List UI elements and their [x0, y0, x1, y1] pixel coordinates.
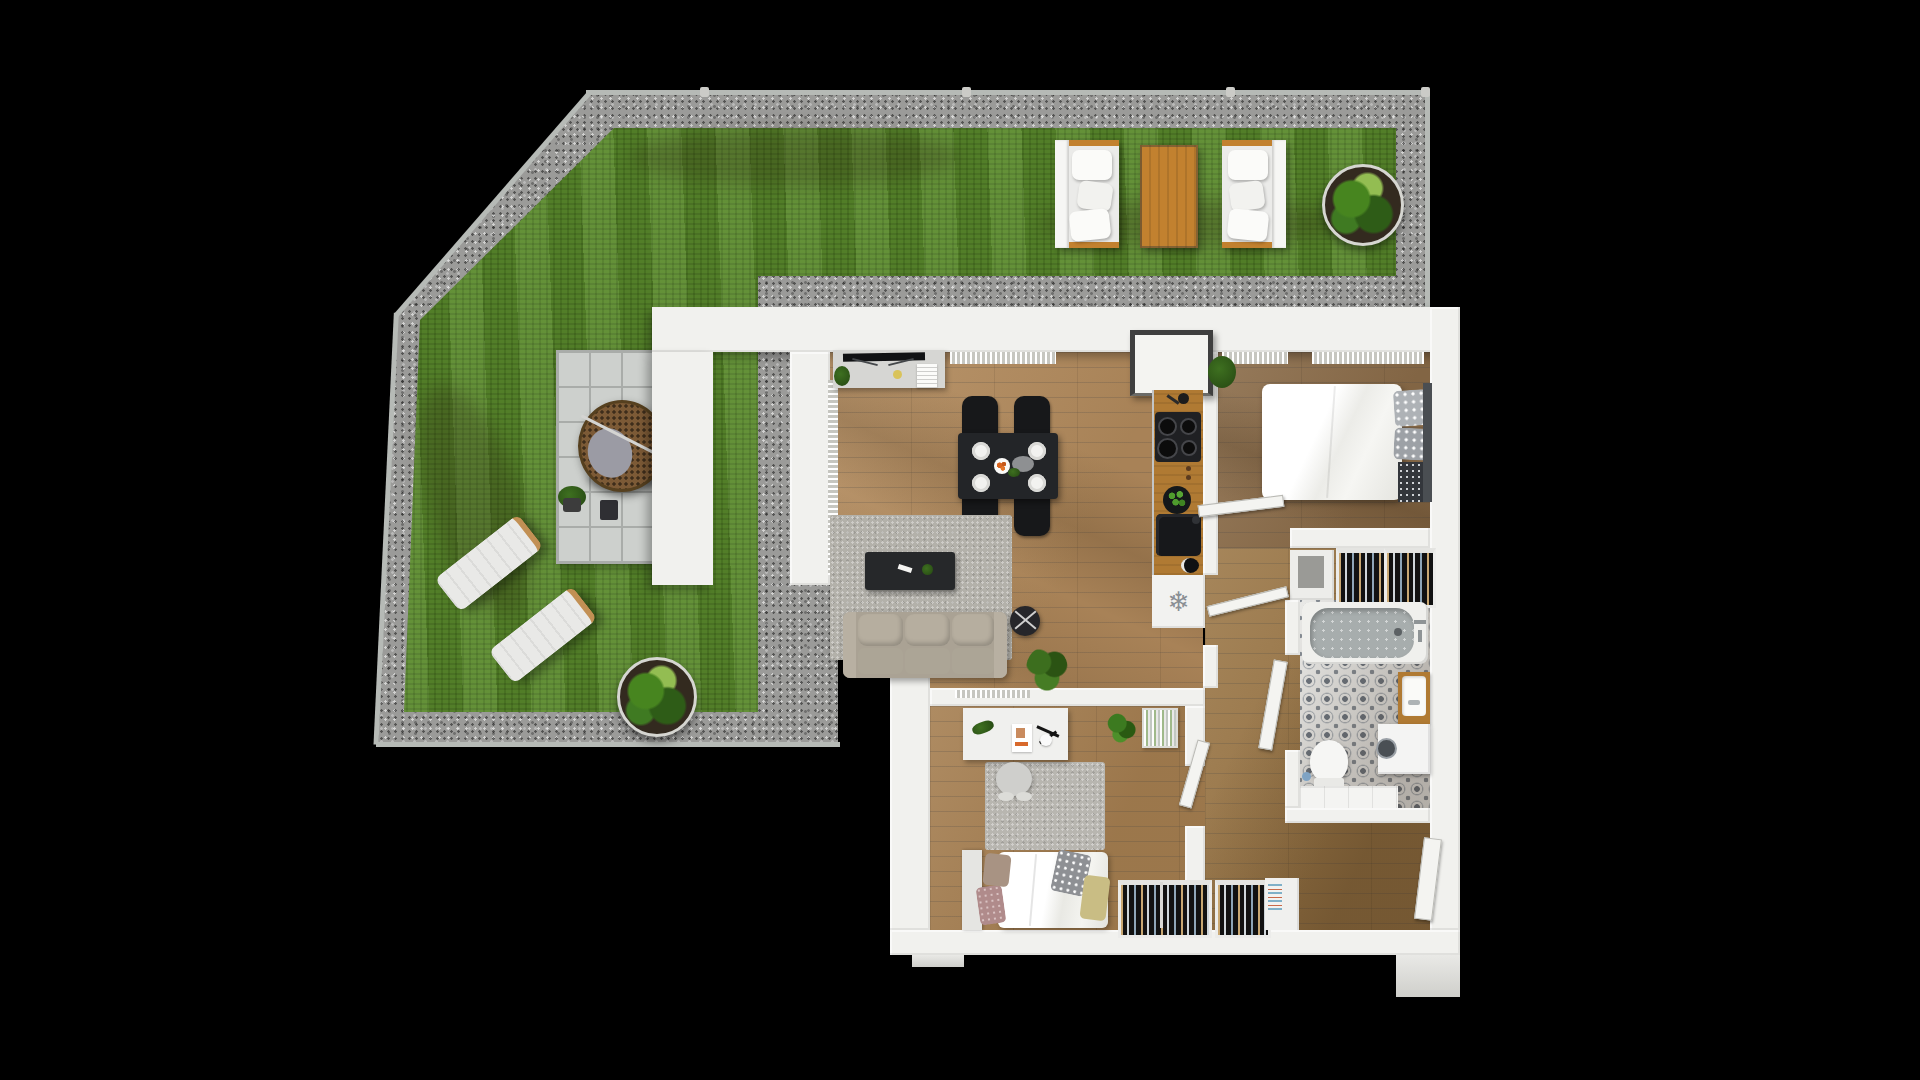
wall-bedroom2-left — [890, 655, 930, 930]
washing-machine-door — [1376, 738, 1397, 759]
cooktop-burner — [1158, 417, 1177, 436]
fence-rail-bottom — [376, 742, 840, 747]
sofa-back-cushion — [952, 614, 994, 646]
counter-drain — [1181, 558, 1199, 573]
outdoor-sofa-backrest — [1055, 140, 1069, 248]
sofa-armrest — [994, 612, 1007, 678]
sofa-armrest — [843, 612, 856, 678]
bathtub-drain — [1394, 628, 1402, 636]
wall-top — [652, 307, 1460, 352]
open-wardrobe-rack — [1384, 548, 1436, 608]
window-living-2 — [950, 352, 1056, 364]
wall-kitchen-back-south — [1203, 645, 1218, 688]
wall-wing — [652, 352, 713, 585]
sofa-seat-cushion — [905, 648, 950, 674]
round-planter — [1322, 164, 1404, 246]
sofa-back-cushion — [858, 614, 903, 646]
wall-bedroom1-bottom — [1290, 528, 1430, 548]
fruit-bowl — [1163, 486, 1191, 514]
outdoor-sofa-cushion — [1228, 180, 1266, 212]
fence-post — [962, 87, 971, 97]
closet-cabinet-panel — [1298, 556, 1324, 588]
bedroom1-headboard — [1423, 383, 1432, 502]
bathtub-faucet — [1414, 620, 1426, 624]
cooktop-burner — [1181, 440, 1197, 456]
toilet-bowl — [1310, 740, 1348, 782]
wall-bathroom-left-lower — [1285, 750, 1300, 808]
hallway-wardrobe — [1215, 880, 1271, 938]
dinner-plate — [1028, 474, 1046, 492]
window-divider-glass — [955, 690, 1030, 698]
outdoor-table — [1140, 145, 1198, 248]
bedroom2-pillow-taupe — [982, 853, 1011, 888]
bedroom2-wardrobe-divider — [1160, 882, 1163, 928]
vanity-sink — [1402, 676, 1426, 716]
bathroom-ledge — [1300, 786, 1398, 808]
round-planter — [617, 657, 697, 737]
wall-bathroom-bottom — [1285, 808, 1430, 823]
outdoor-sofa-wood-trim — [1222, 140, 1272, 146]
vanity-faucet — [1408, 700, 1420, 705]
fridge: ❄ — [1152, 575, 1205, 628]
fence-rail-top — [586, 90, 1430, 95]
side-porch — [912, 955, 964, 967]
desk-paper-mark — [1015, 742, 1028, 746]
sideboard-papers — [917, 364, 937, 388]
sideboard-plant — [834, 366, 850, 386]
sofa-seat-cushion — [858, 648, 903, 674]
outdoor-sofa-backrest — [1272, 140, 1286, 248]
fence-post — [700, 87, 709, 97]
outdoor-sofa-cushion — [1069, 208, 1112, 242]
toilet-brush — [1302, 772, 1311, 781]
cooktop-burner — [1180, 418, 1197, 435]
tree-shadow — [630, 128, 960, 186]
kitchen-shaft — [1130, 330, 1213, 396]
dinner-plate — [972, 474, 990, 492]
kitchen-faucet — [1178, 393, 1189, 404]
wall-right — [1430, 307, 1460, 930]
patio-side-table — [600, 500, 618, 520]
floor-plan: ❄ — [0, 0, 1920, 1080]
fence-post — [1421, 87, 1430, 97]
wall-bathroom-left-upper — [1285, 600, 1300, 655]
window-bedroom1-2 — [1312, 352, 1424, 364]
patio-plant-pot — [563, 498, 581, 512]
desk-chair-leg — [998, 792, 1014, 801]
sofa-back-cushion — [905, 614, 950, 646]
wall-left-living — [790, 352, 830, 585]
bedroom2-pillow-rose — [975, 884, 1006, 925]
bedroom2-wardrobe — [1118, 880, 1212, 938]
desk-lamp-shade — [1040, 734, 1052, 746]
outdoor-sofa-cushion — [1076, 180, 1114, 212]
outdoor-sofa-cushion — [1227, 208, 1270, 242]
desk-chair-leg — [1016, 792, 1032, 801]
bedroom2-pillow-khaki — [1079, 875, 1110, 922]
living-plant — [1026, 646, 1068, 692]
dinner-plate — [972, 442, 990, 460]
desk-chair — [996, 762, 1032, 796]
counter-knob — [1186, 466, 1191, 471]
cooktop-burner — [1157, 438, 1178, 459]
outdoor-sofa-wood-trim — [1069, 242, 1119, 248]
entrance-porch — [1396, 955, 1460, 997]
outdoor-sofa-cushion — [1228, 150, 1268, 180]
table-greens — [1008, 468, 1020, 477]
sideboard-bowl — [893, 370, 902, 379]
outdoor-sofa-wood-trim — [1069, 140, 1119, 146]
hallway-cabinet-books — [1268, 884, 1282, 910]
fridge-snowflake-icon: ❄ — [1167, 586, 1190, 617]
bookshelf — [1142, 708, 1178, 748]
bedroom2-plant — [1106, 712, 1138, 744]
coffee-table-plant — [922, 564, 933, 575]
fence-rail-right — [1425, 90, 1430, 308]
desk-paper-photo — [1016, 728, 1025, 738]
open-wardrobe-rack — [1336, 548, 1388, 608]
outdoor-sofa-cushion — [1072, 150, 1112, 180]
bathtub-faucet — [1418, 630, 1422, 642]
counter-knob — [1186, 475, 1191, 480]
fence-post — [1226, 87, 1235, 97]
sofa-seat-cushion — [952, 648, 994, 674]
outdoor-sofa-wood-trim — [1222, 242, 1272, 248]
bedroom1-plant — [1208, 356, 1236, 388]
